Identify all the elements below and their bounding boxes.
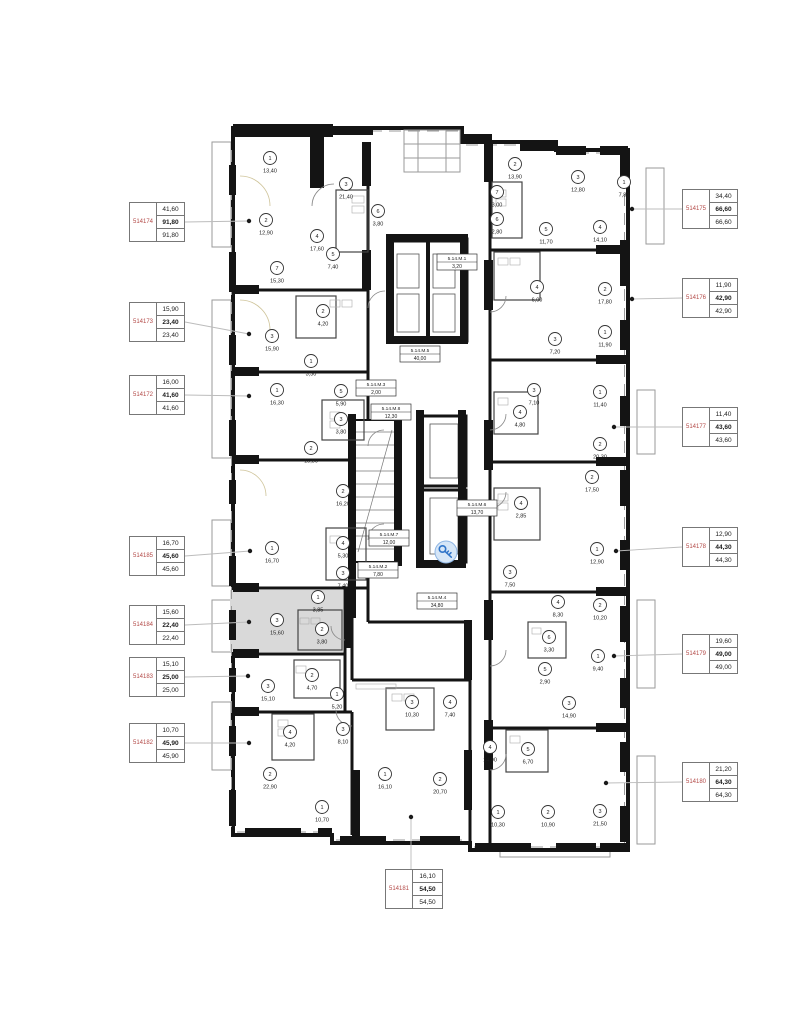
room-label-514185-3: 37,40 — [337, 567, 350, 590]
apartment-dot-514174 — [247, 219, 251, 223]
apartment-id: 514181 — [386, 870, 413, 908]
svg-text:4: 4 — [535, 285, 538, 291]
svg-text:3: 3 — [508, 570, 511, 576]
apartment-id: 514183 — [130, 658, 157, 696]
area-value: 45,90 — [157, 736, 184, 749]
svg-text:1: 1 — [383, 772, 386, 778]
room-label-514181-3: 310,30 — [405, 696, 419, 719]
room-label-514179-6: 63,30 — [543, 631, 556, 654]
apartment-areas: 15,1025,0025,00 — [157, 658, 184, 696]
svg-text:6,70: 6,70 — [523, 760, 534, 766]
svg-text:2: 2 — [598, 603, 601, 609]
svg-text:15,90: 15,90 — [265, 347, 279, 353]
apartment-id: 514176 — [683, 279, 710, 317]
area-value: 25,00 — [157, 683, 184, 696]
apartment-dot-514181 — [409, 815, 413, 819]
svg-text:2: 2 — [310, 673, 313, 679]
room-label-514179-1: 19,40 — [592, 650, 605, 673]
apartment-areas: 10,7045,9045,90 — [157, 724, 184, 762]
svg-text:2: 2 — [341, 489, 344, 495]
area-value: 19,60 — [710, 635, 737, 647]
apartment-dot-514182 — [247, 741, 251, 745]
svg-text:2: 2 — [438, 777, 441, 783]
room-label-514174-2: 212,90 — [259, 214, 273, 237]
svg-text:14,90: 14,90 — [562, 714, 576, 720]
area-value: 49,00 — [710, 647, 737, 660]
svg-text:5,20: 5,20 — [332, 705, 343, 711]
area-value: 45,60 — [157, 562, 184, 575]
svg-text:5,30: 5,30 — [338, 554, 349, 560]
apartment-id: 514175 — [683, 190, 710, 228]
apartment-areas: 34,4066,6066,60 — [710, 190, 737, 228]
apartment-dot-514177 — [612, 425, 616, 429]
area-value: 64,30 — [710, 788, 737, 801]
svg-text:3: 3 — [275, 618, 278, 624]
area-value: 10,70 — [157, 724, 184, 736]
svg-text:3,00: 3,00 — [492, 203, 503, 209]
svg-text:17,50: 17,50 — [585, 488, 599, 494]
room-label-514178-3: 37,50 — [504, 566, 517, 589]
svg-text:13,40: 13,40 — [263, 169, 277, 175]
apartment-id: 514184 — [130, 606, 157, 644]
svg-text:4,70: 4,70 — [307, 686, 318, 692]
svg-text:3: 3 — [339, 417, 342, 423]
apartment-id: 514177 — [683, 408, 710, 446]
room-label-514175-6: 62,80 — [491, 213, 504, 236]
room-label-514183-3: 315,10 — [261, 680, 275, 703]
apartment-id: 514182 — [130, 724, 157, 762]
svg-text:15,60: 15,60 — [270, 631, 284, 637]
area-value: 44,30 — [710, 553, 737, 566]
room-label-514174-1: 113,40 — [263, 152, 277, 175]
svg-text:4: 4 — [519, 501, 522, 507]
svg-text:12,80: 12,80 — [571, 188, 585, 194]
area-value: 43,60 — [710, 433, 737, 446]
svg-text:3,80: 3,80 — [373, 222, 384, 228]
apartment-areas: 21,2064,3064,30 — [710, 763, 737, 801]
apartment-dot-514179 — [612, 654, 616, 658]
svg-text:1: 1 — [603, 330, 606, 336]
svg-text:6: 6 — [495, 217, 498, 223]
apartment-areas: 19,6049,0049,00 — [710, 635, 737, 673]
apartment-label-514185[interactable]: 51418516,7045,6045,60 — [129, 536, 185, 576]
apartment-label-514177[interactable]: 51417711,4043,6043,60 — [682, 407, 738, 447]
svg-text:12,30: 12,30 — [385, 414, 398, 420]
room-label-514180-1: 110,30 — [491, 806, 505, 829]
core-room-label-5.14.M.4: 5.14.M.434,80 — [417, 593, 457, 609]
room-label-514182-3: 38,10 — [337, 723, 350, 746]
svg-text:16,30: 16,30 — [270, 401, 284, 407]
area-value: 49,00 — [710, 660, 737, 673]
room-label-514172-1: 116,30 — [270, 384, 284, 407]
leader-line-514176 — [632, 298, 682, 299]
svg-text:3: 3 — [576, 175, 579, 181]
room-label-514177-3: 37,10 — [528, 384, 541, 407]
area-value: 22,40 — [157, 631, 184, 644]
svg-text:4: 4 — [488, 745, 491, 751]
svg-text:12,90: 12,90 — [590, 560, 604, 566]
apartment-label-514178[interactable]: 51417812,9044,3044,30 — [682, 527, 738, 567]
room-label-514183-2: 24,70 — [306, 669, 319, 692]
svg-text:5.14.M.5: 5.14.M.5 — [411, 348, 430, 354]
svg-text:5: 5 — [339, 389, 342, 395]
svg-text:7,40: 7,40 — [328, 265, 339, 271]
svg-text:6,00: 6,00 — [532, 298, 543, 304]
svg-text:2: 2 — [546, 810, 549, 816]
room-label-514180-2: 210,90 — [541, 806, 555, 829]
svg-text:4: 4 — [448, 700, 451, 706]
svg-text:2: 2 — [590, 475, 593, 481]
room-label-514185-2: 216,20 — [336, 485, 350, 508]
svg-text:5.14.M.1: 5.14.M.1 — [448, 256, 467, 262]
room-label-514182-1: 110,70 — [315, 801, 329, 824]
room-label-514175-7: 73,00 — [491, 186, 504, 209]
area-value: 11,40 — [710, 408, 737, 420]
svg-text:16,10: 16,10 — [378, 785, 392, 791]
room-label-514184-2: 23,80 — [316, 623, 329, 646]
svg-text:8,30: 8,30 — [553, 613, 564, 619]
apartment-label-514184[interactable]: 51418415,6022,4022,40 — [129, 605, 185, 645]
area-value: 34,40 — [710, 190, 737, 202]
area-value: 12,90 — [710, 528, 737, 540]
area-value: 54,50 — [413, 895, 442, 908]
svg-text:14,90: 14,90 — [483, 758, 497, 764]
room-label-514172-5: 55,90 — [335, 385, 348, 408]
svg-text:7,40: 7,40 — [338, 584, 349, 590]
room-label-514181-2: 220,70 — [433, 773, 447, 796]
area-value: 21,20 — [710, 763, 737, 775]
room-label-514173-3: 315,90 — [265, 330, 279, 353]
svg-text:1: 1 — [316, 595, 319, 601]
apartment-dot-514176 — [630, 297, 634, 301]
area-value: 16,00 — [157, 376, 184, 388]
svg-text:3: 3 — [567, 701, 570, 707]
svg-text:3,20: 3,20 — [452, 264, 462, 270]
room-label-514180-4: 414,90 — [483, 741, 497, 764]
svg-text:3,30: 3,30 — [544, 648, 555, 654]
svg-text:5.14.M.4: 5.14.M.4 — [428, 595, 447, 601]
area-value: 42,90 — [710, 291, 737, 304]
apartment-label-514183[interactable]: 51418315,1025,0025,00 — [129, 657, 185, 697]
room-label-514178-2: 217,50 — [585, 471, 599, 494]
svg-text:3: 3 — [341, 727, 344, 733]
svg-text:13,70: 13,70 — [471, 510, 484, 516]
room-label-514175-2: 213,90 — [508, 158, 522, 181]
area-value: 25,00 — [157, 670, 184, 683]
svg-text:1: 1 — [275, 388, 278, 394]
svg-text:1: 1 — [496, 810, 499, 816]
room-label-514172-3: 33,80 — [335, 413, 348, 436]
svg-text:11,40: 11,40 — [593, 403, 606, 409]
apartment-label-514174[interactable]: 51417441,6091,8091,80 — [129, 202, 185, 242]
apartment-dot-514184 — [247, 620, 251, 624]
room-label-514174-5: 57,40 — [327, 248, 340, 271]
room-label-514177-1: 111,40 — [593, 386, 606, 409]
svg-text:2,85: 2,85 — [516, 514, 527, 520]
svg-text:15,10: 15,10 — [261, 697, 275, 703]
svg-text:2,80: 2,80 — [492, 230, 503, 236]
area-value: 43,60 — [710, 420, 737, 433]
area-value: 15,60 — [157, 606, 184, 618]
svg-text:2,00: 2,00 — [371, 390, 381, 396]
room-label-514175-4: 414,10 — [593, 221, 607, 244]
area-value: 16,10 — [413, 870, 442, 882]
svg-text:3: 3 — [598, 809, 601, 815]
apartment-areas: 12,9044,3044,30 — [710, 528, 737, 566]
room-label-514184-1: 13,85 — [312, 591, 325, 614]
area-value: 64,30 — [710, 775, 737, 788]
apartment-id: 514185 — [130, 537, 157, 575]
svg-text:7: 7 — [495, 190, 498, 196]
svg-text:1: 1 — [595, 547, 598, 553]
apartment-dot-514180 — [604, 781, 608, 785]
svg-text:21,50: 21,50 — [593, 822, 607, 828]
svg-text:5: 5 — [544, 227, 547, 233]
svg-text:3,85: 3,85 — [313, 608, 324, 614]
room-label-514179-3: 314,90 — [562, 697, 576, 720]
apartment-areas: 16,1054,5054,50 — [413, 870, 442, 908]
svg-text:3: 3 — [266, 684, 269, 690]
apartment-areas: 41,6091,8091,80 — [157, 203, 184, 241]
apartment-id: 514173 — [130, 303, 157, 341]
svg-text:6: 6 — [376, 209, 379, 215]
svg-text:10,30: 10,30 — [405, 713, 419, 719]
room-label-514174-6: 63,80 — [372, 205, 385, 228]
core-room-label-5.14.M.8: 5.14.M.812,30 — [371, 404, 411, 420]
room-label-514173-2: 24,20 — [317, 305, 330, 328]
apartment-label-514179[interactable]: 51417919,6049,0049,00 — [682, 634, 738, 674]
svg-text:3: 3 — [341, 571, 344, 577]
svg-text:2: 2 — [320, 627, 323, 633]
svg-text:1: 1 — [320, 805, 323, 811]
room-label-514176-3: 37,20 — [549, 333, 562, 356]
svg-text:7,50: 7,50 — [505, 583, 516, 589]
room-label-514181-1: 116,10 — [378, 768, 392, 791]
floorplan-page: 5.14.M.13,205.14.M.540,005.14.M.32,005.1… — [0, 0, 800, 1032]
svg-text:10,90: 10,90 — [541, 823, 555, 829]
room-label-514179-5: 52,90 — [539, 663, 552, 686]
apartment-label-514172[interactable]: 51417216,0041,6041,60 — [129, 375, 185, 415]
svg-text:7,20: 7,20 — [550, 350, 561, 356]
apartment-dot-514178 — [614, 549, 618, 553]
svg-text:9,40: 9,40 — [593, 667, 604, 673]
svg-text:15,30: 15,30 — [270, 279, 284, 285]
svg-text:2: 2 — [309, 446, 312, 452]
room-label-514183-1: 15,20 — [331, 688, 344, 711]
svg-text:10,30: 10,30 — [491, 823, 505, 829]
apartment-id: 514178 — [683, 528, 710, 566]
svg-text:16,70: 16,70 — [265, 559, 279, 565]
area-value: 16,70 — [157, 537, 184, 549]
svg-text:12,00: 12,00 — [383, 540, 396, 546]
svg-text:3: 3 — [344, 182, 347, 188]
apartment-dot-514183 — [246, 674, 250, 678]
apartment-label-514176[interactable]: 51417611,9042,9042,90 — [682, 278, 738, 318]
area-value: 22,40 — [157, 618, 184, 631]
core-room-label-5.14.M.3: 5.14.M.32,00 — [356, 380, 396, 396]
core-room-label-5.14.M.1: 5.14.M.13,20 — [437, 254, 477, 270]
svg-text:13,90: 13,90 — [508, 175, 522, 181]
svg-text:14,10: 14,10 — [593, 238, 607, 244]
room-label-514184-3: 315,60 — [270, 614, 284, 637]
svg-text:3: 3 — [410, 700, 413, 706]
svg-text:4: 4 — [341, 541, 344, 547]
svg-text:3,30: 3,30 — [306, 372, 317, 378]
apartment-areas: 15,9023,4023,40 — [157, 303, 184, 341]
room-label-514178-4: 42,85 — [515, 497, 528, 520]
svg-text:17,80: 17,80 — [598, 300, 612, 306]
svg-text:10,20: 10,20 — [593, 616, 607, 622]
svg-text:1: 1 — [596, 654, 599, 660]
key-marker[interactable] — [435, 541, 457, 563]
svg-text:3,80: 3,80 — [317, 640, 328, 646]
svg-text:5.14.M.8: 5.14.M.8 — [382, 406, 401, 412]
room-label-514175-1: 17,80 — [618, 176, 631, 199]
svg-text:20,70: 20,70 — [433, 790, 447, 796]
apartment-areas: 11,9042,9042,90 — [710, 279, 737, 317]
room-label-514177-4: 44,80 — [514, 406, 527, 429]
core-room-label-5.14.M.2: 5.14.M.27,80 — [358, 562, 398, 578]
svg-text:5.14.M.7: 5.14.M.7 — [380, 532, 399, 538]
apartment-dot-514175 — [630, 207, 634, 211]
apartment-id: 514179 — [683, 635, 710, 673]
room-label-514181-4: 47,40 — [444, 696, 457, 719]
svg-text:3: 3 — [532, 388, 535, 394]
room-label-514182-2: 222,90 — [263, 768, 277, 791]
svg-text:12,90: 12,90 — [259, 231, 273, 237]
svg-text:5.14.M.2: 5.14.M.2 — [369, 564, 388, 570]
apartment-label-514182[interactable]: 51418210,7045,9045,90 — [129, 723, 185, 763]
apartment-areas: 16,0041,6041,60 — [157, 376, 184, 414]
svg-text:8,10: 8,10 — [338, 740, 349, 746]
apartment-label-514181[interactable]: 51418116,1054,5054,50 — [385, 869, 443, 909]
svg-text:4: 4 — [315, 234, 318, 240]
svg-text:1: 1 — [268, 156, 271, 162]
svg-text:5.14.M.6: 5.14.M.6 — [468, 502, 487, 508]
svg-text:1: 1 — [622, 180, 625, 186]
area-value: 45,90 — [157, 749, 184, 762]
area-value: 44,30 — [710, 540, 737, 553]
area-value: 41,60 — [157, 388, 184, 401]
apartment-areas: 16,7045,6045,60 — [157, 537, 184, 575]
room-label-514177-2: 220,30 — [593, 438, 607, 461]
svg-text:7,80: 7,80 — [619, 193, 630, 199]
area-value: 42,90 — [710, 304, 737, 317]
svg-text:6: 6 — [547, 635, 550, 641]
svg-text:17,60: 17,60 — [310, 247, 324, 253]
area-value: 54,50 — [413, 882, 442, 895]
area-value: 41,60 — [157, 401, 184, 414]
svg-text:4: 4 — [598, 225, 601, 231]
svg-text:2: 2 — [264, 218, 267, 224]
svg-text:5: 5 — [526, 747, 529, 753]
room-label-514176-2: 217,80 — [598, 283, 612, 306]
svg-text:3,80: 3,80 — [336, 430, 347, 436]
apartment-label-514173[interactable]: 51417315,9023,4023,40 — [129, 302, 185, 342]
room-label-514178-1: 112,90 — [590, 543, 604, 566]
area-value: 91,80 — [157, 215, 184, 228]
area-value: 11,90 — [710, 279, 737, 291]
apartment-label-514175[interactable]: 51417534,4066,6066,60 — [682, 189, 738, 229]
svg-text:7,40: 7,40 — [445, 713, 456, 719]
svg-text:34,80: 34,80 — [431, 603, 444, 609]
room-label-514172-2: 215,80 — [304, 442, 318, 465]
area-value: 23,40 — [157, 315, 184, 328]
svg-text:5,90: 5,90 — [336, 402, 347, 408]
room-label-514173-1: 13,30 — [305, 355, 318, 378]
svg-text:22,90: 22,90 — [263, 785, 277, 791]
area-value: 66,60 — [710, 215, 737, 228]
area-value: 45,60 — [157, 549, 184, 562]
svg-text:4: 4 — [556, 600, 559, 606]
svg-text:20,30: 20,30 — [593, 455, 607, 461]
svg-text:1: 1 — [309, 359, 312, 365]
area-value: 15,10 — [157, 658, 184, 670]
apartment-dot-514185 — [248, 549, 252, 553]
svg-text:11,90: 11,90 — [598, 343, 611, 349]
apartment-id: 514180 — [683, 763, 710, 801]
svg-text:4,20: 4,20 — [285, 743, 296, 749]
svg-text:1: 1 — [270, 546, 273, 552]
area-value: 66,60 — [710, 202, 737, 215]
apartment-dot-514173 — [247, 332, 251, 336]
svg-text:1: 1 — [335, 692, 338, 698]
room-label-514185-4: 45,30 — [337, 537, 350, 560]
room-label-514182-4: 44,20 — [284, 726, 297, 749]
svg-text:10,70: 10,70 — [315, 818, 329, 824]
room-label-514185-1: 116,70 — [265, 542, 279, 565]
room-label-514180-5: 56,70 — [522, 743, 535, 766]
room-label-514180-3: 321,50 — [593, 805, 607, 828]
svg-text:11,70: 11,70 — [539, 240, 552, 246]
core-room-label-5.14.M.7: 5.14.M.712,00 — [369, 530, 409, 546]
apartment-dot-514172 — [247, 394, 251, 398]
svg-text:2,90: 2,90 — [540, 680, 551, 686]
room-label-514174-3: 321,40 — [339, 178, 353, 201]
svg-text:7,80: 7,80 — [373, 572, 383, 578]
core-room-label-5.14.M.6: 5.14.M.613,70 — [457, 500, 497, 516]
svg-text:5.14.M.3: 5.14.M.3 — [367, 382, 386, 388]
apartment-label-514180[interactable]: 51418021,2064,3064,30 — [682, 762, 738, 802]
area-value: 41,60 — [157, 203, 184, 215]
area-value: 15,90 — [157, 303, 184, 315]
svg-text:4,20: 4,20 — [318, 322, 329, 328]
svg-text:21,40: 21,40 — [339, 195, 353, 201]
svg-text:3: 3 — [553, 337, 556, 343]
apartment-id: 514172 — [130, 376, 157, 414]
svg-text:5: 5 — [543, 667, 546, 673]
svg-text:2: 2 — [268, 772, 271, 778]
svg-text:2: 2 — [603, 287, 606, 293]
svg-text:2: 2 — [321, 309, 324, 315]
area-value: 23,40 — [157, 328, 184, 341]
svg-text:7: 7 — [275, 266, 278, 272]
svg-text:2: 2 — [598, 442, 601, 448]
room-label-514175-5: 511,70 — [539, 223, 552, 246]
apartment-areas: 15,6022,4022,40 — [157, 606, 184, 644]
svg-text:4: 4 — [518, 410, 521, 416]
room-label-514175-3: 312,80 — [571, 171, 585, 194]
svg-text:1: 1 — [598, 390, 601, 396]
svg-text:4,80: 4,80 — [515, 423, 526, 429]
svg-text:7,10: 7,10 — [529, 401, 540, 407]
room-label-514174-4: 417,60 — [310, 230, 324, 253]
svg-text:16,20: 16,20 — [336, 502, 350, 508]
room-label-514176-1: 111,90 — [598, 326, 611, 349]
apartment-areas: 11,4043,6043,60 — [710, 408, 737, 446]
room-label-514174-7: 715,30 — [270, 262, 284, 285]
room-label-514179-4: 48,30 — [552, 596, 565, 619]
